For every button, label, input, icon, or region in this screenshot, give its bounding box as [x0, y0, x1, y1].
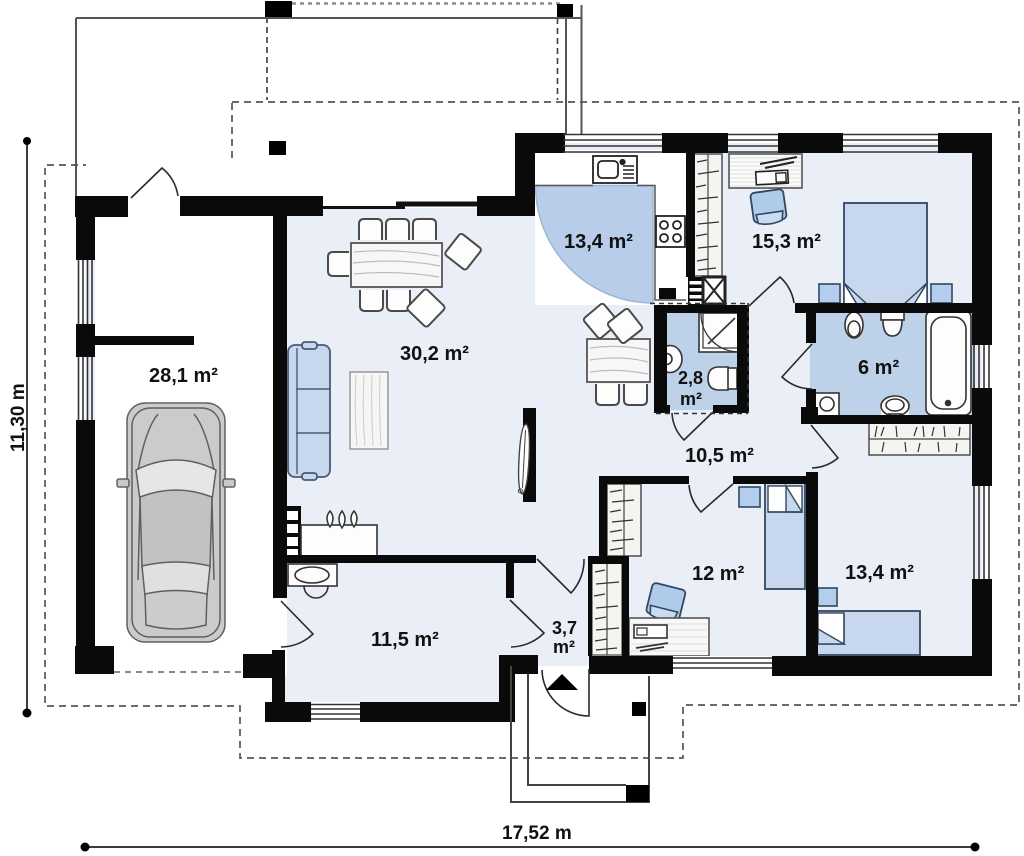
svg-text:13,4 m²: 13,4 m² — [845, 562, 914, 584]
svg-text:m²: m² — [680, 389, 702, 409]
svg-text:2,8: 2,8 — [678, 368, 703, 388]
svg-text:11,5 m²: 11,5 m² — [371, 629, 439, 651]
svg-text:13,4 m²: 13,4 m² — [564, 231, 633, 253]
svg-text:28,1 m²: 28,1 m² — [149, 365, 218, 387]
svg-text:30,2 m²: 30,2 m² — [400, 343, 469, 365]
svg-text:17,52 m: 17,52 m — [502, 823, 572, 844]
svg-text:3,7: 3,7 — [552, 618, 577, 638]
svg-text:15,3 m²: 15,3 m² — [752, 231, 821, 253]
svg-text:12 m²: 12 m² — [692, 563, 745, 585]
svg-text:6 m²: 6 m² — [858, 357, 899, 379]
svg-text:11,30 m: 11,30 m — [8, 383, 29, 452]
svg-text:10,5 m²: 10,5 m² — [685, 445, 754, 467]
svg-text:m²: m² — [553, 637, 575, 657]
